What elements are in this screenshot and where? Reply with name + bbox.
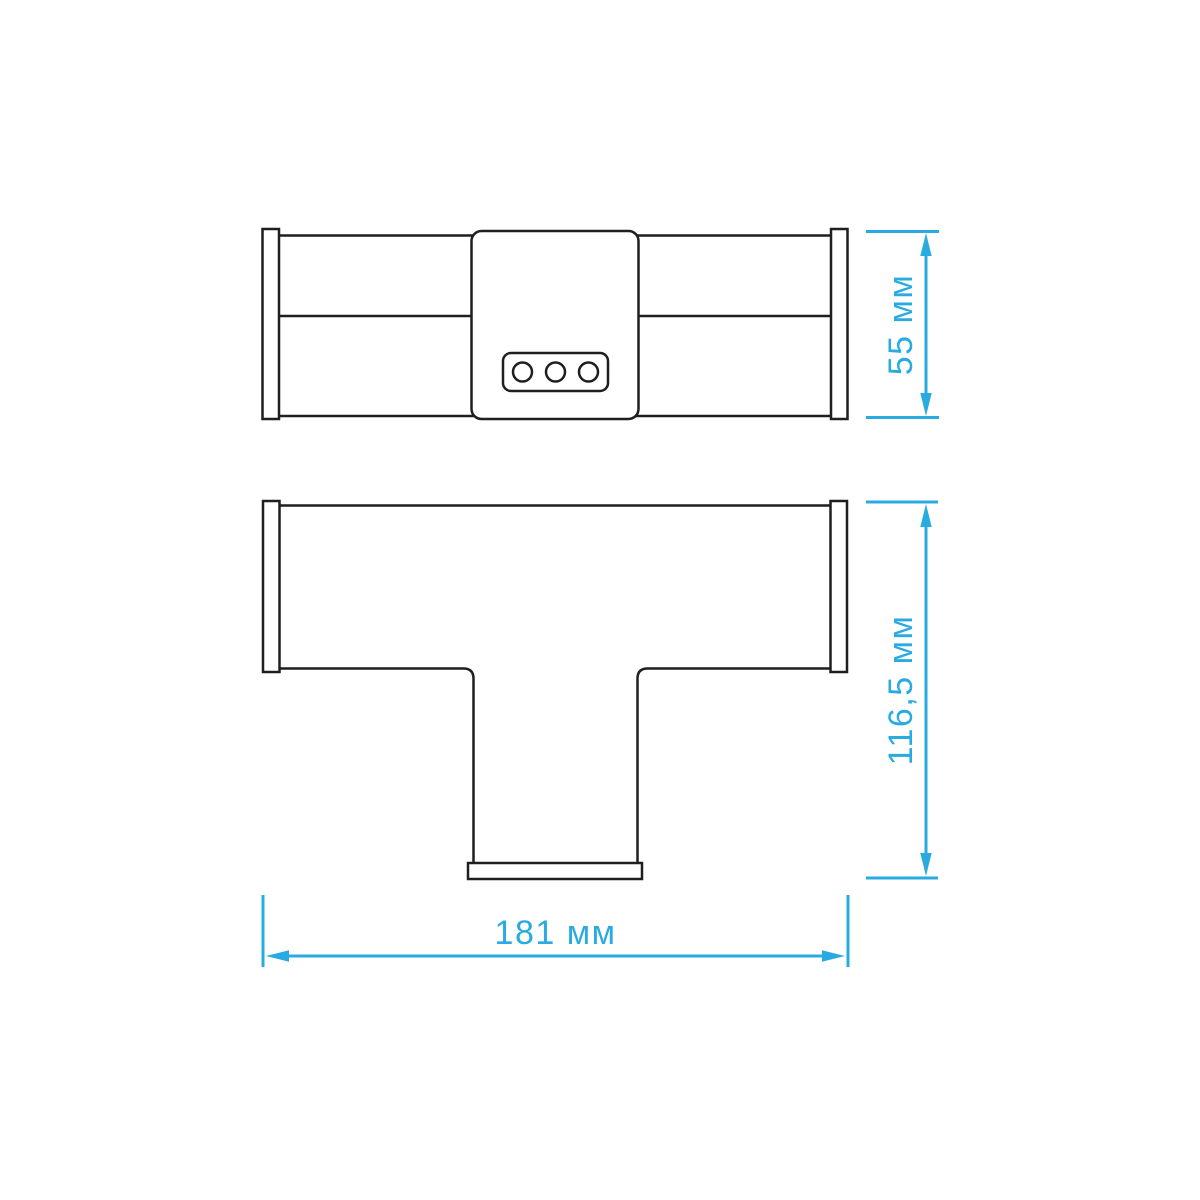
arrow-down-icon [920,393,931,416]
plan-view-right-stem-outline [638,669,832,865]
dimension-label-plan-depth: 116,5 мм [882,615,920,766]
dimension-label-overall-width: 181 мм [495,914,617,952]
plan-view [263,501,847,879]
arrow-up-icon [920,233,931,256]
arrow-down-icon [920,853,931,876]
dimension-side-height: 55 мм [866,232,939,418]
side-view-right-end-cap [831,229,848,419]
plan-view-right-end-cap [831,501,848,672]
dimension-label-side-height: 55 мм [882,274,920,376]
arrow-up-icon [920,504,931,527]
button-circle-3 [579,363,598,382]
side-view-left-end-cap [263,229,280,419]
arrow-right-icon [822,950,845,961]
arrow-left-icon [266,950,289,961]
button-circle-1 [513,363,532,382]
side-view [263,229,848,419]
dimension-drawing: 55 мм 116,5 мм 181 мм [0,0,1200,1200]
plan-view-bottom-connector-cap [468,863,642,879]
plan-view-left-stem-outline [279,669,474,865]
dimension-plan-depth: 116,5 мм [866,502,938,878]
plan-view-left-end-cap [263,501,280,672]
technical-drawing-canvas: 55 мм 116,5 мм 181 мм [0,0,1200,1200]
dimension-overall-width: 181 мм [263,895,848,967]
button-circle-2 [546,363,565,382]
